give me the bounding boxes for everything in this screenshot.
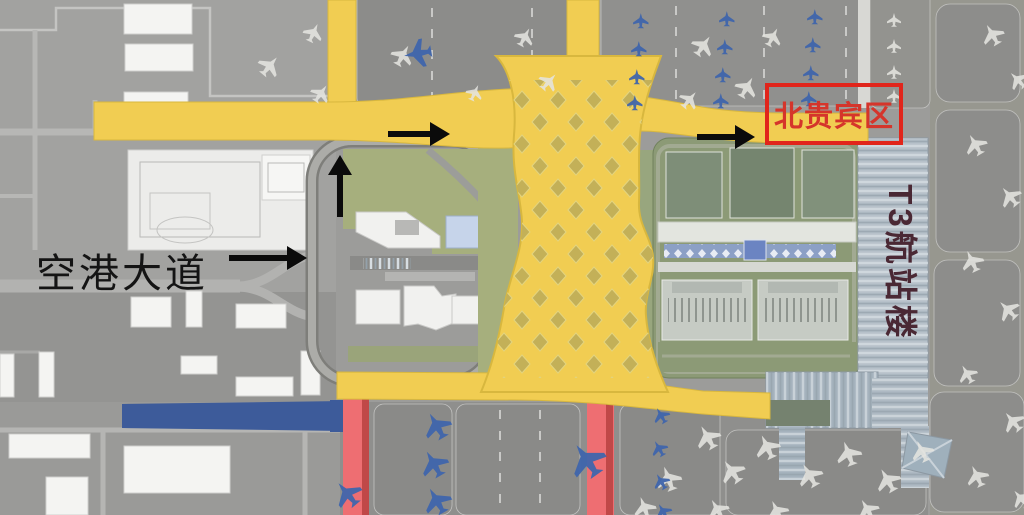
airport-map: 空港大道 北贵宾区 T3航站楼	[0, 0, 1024, 515]
vip-terminal-block	[653, 138, 860, 378]
map-base	[0, 0, 1024, 515]
